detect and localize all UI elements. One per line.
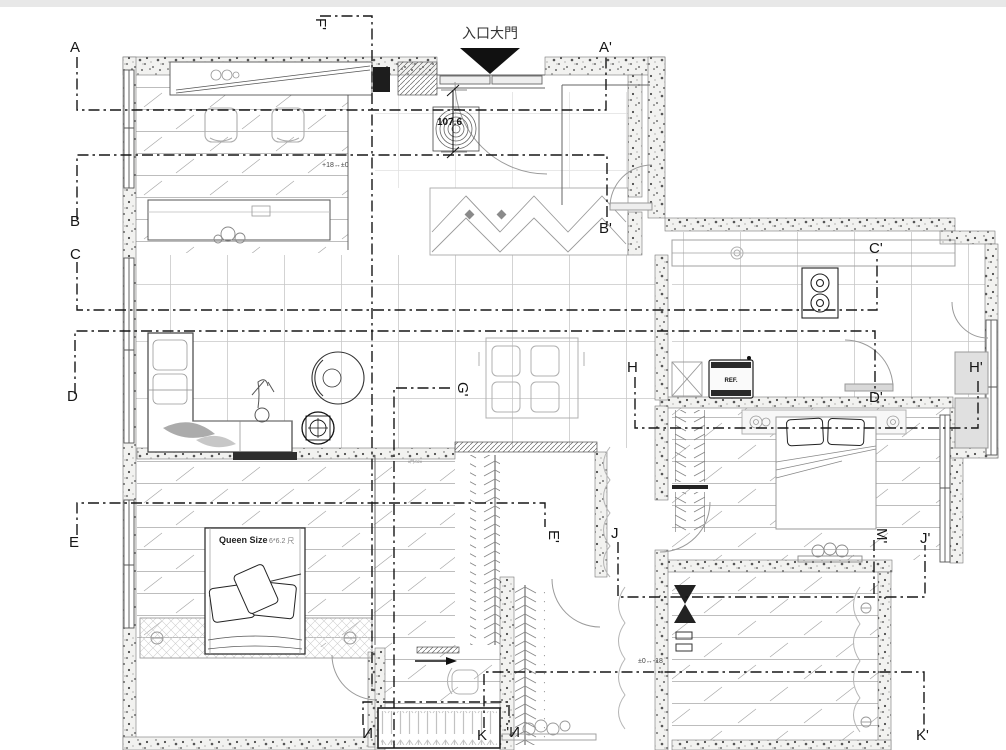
wardrobe-rack-3 [675, 410, 705, 482]
level-note-right: ±0↔-18 [638, 658, 663, 665]
fridge-label: REF. [724, 378, 737, 384]
section-marker-c-prime: C' [869, 240, 883, 257]
section-marker-b-prime: B' [599, 220, 612, 237]
section-marker-a: A [70, 39, 80, 56]
section-marker-n: N [362, 725, 373, 742]
pillow-r1 [786, 418, 823, 446]
queen-bed-size: 6*6.2 尺 [269, 537, 294, 545]
tall-cabinet-2 [955, 398, 988, 448]
entry-door-leaf-2 [492, 76, 542, 84]
section-marker-m-prime: M' [873, 528, 890, 543]
wardrobe-rack-1 [470, 455, 500, 645]
entry-dimension-text: 107.6 [437, 117, 462, 128]
section-marker-e: E [69, 534, 79, 551]
window-left-top [124, 70, 134, 188]
floor-plan-canvas: 入口大門 107.6 +18↔±0 ±0↔-18 REF. #門/02# Que… [0, 0, 1006, 750]
console-table [148, 200, 330, 240]
section-marker-a-prime: A' [599, 39, 612, 56]
entrance-annotation: 入口大門 [460, 25, 520, 74]
section-marker-h-prime: H' [969, 359, 983, 376]
section-marker-b: B [70, 213, 80, 230]
window-left-bottom [124, 500, 134, 628]
entrance-label: 入口大門 [462, 25, 518, 41]
floor-plan-page: 入口大門 107.6 +18↔±0 ±0↔-18 REF. #門/02# Que… [0, 0, 1006, 750]
window-left-mid [124, 258, 134, 443]
section-marker-k: K [477, 727, 487, 744]
fridge [709, 356, 753, 398]
section-marker-g-prime: G' [454, 382, 471, 397]
section-marker-e-prime: E' [545, 530, 562, 543]
section-marker-k-prime: K' [916, 727, 929, 744]
entry-door-leaf-1 [440, 76, 490, 84]
level-note-left: +18↔±0 [322, 162, 349, 169]
wardrobe-rack-4 [675, 492, 705, 532]
queen-bed-label: Queen Size [219, 535, 268, 545]
structural-column [373, 67, 390, 92]
section-marker-j: J [611, 525, 619, 542]
bedroom-bottom-left [205, 528, 305, 654]
closet-note: #門/02# [408, 459, 423, 464]
section-marker-d-prime: D' [869, 389, 883, 406]
entrance-arrow-icon [460, 48, 520, 74]
pillow-r2 [828, 418, 865, 445]
section-marker-d: D [67, 388, 78, 405]
window-top-bar [0, 0, 1006, 7]
wardrobe-rack-2 [515, 585, 545, 745]
section-marker-f-prime: F' [312, 18, 329, 30]
section-marker-c: C [70, 246, 81, 263]
section-marker-j-prime: J' [920, 530, 931, 547]
tv-unit [233, 452, 297, 460]
tile-diamond-dots [465, 210, 507, 220]
window-right-bedroom [940, 415, 950, 562]
section-marker-h: H [627, 359, 638, 376]
section-marker-n-prime: N' [506, 724, 520, 741]
door-bottom-right-room [552, 579, 600, 627]
